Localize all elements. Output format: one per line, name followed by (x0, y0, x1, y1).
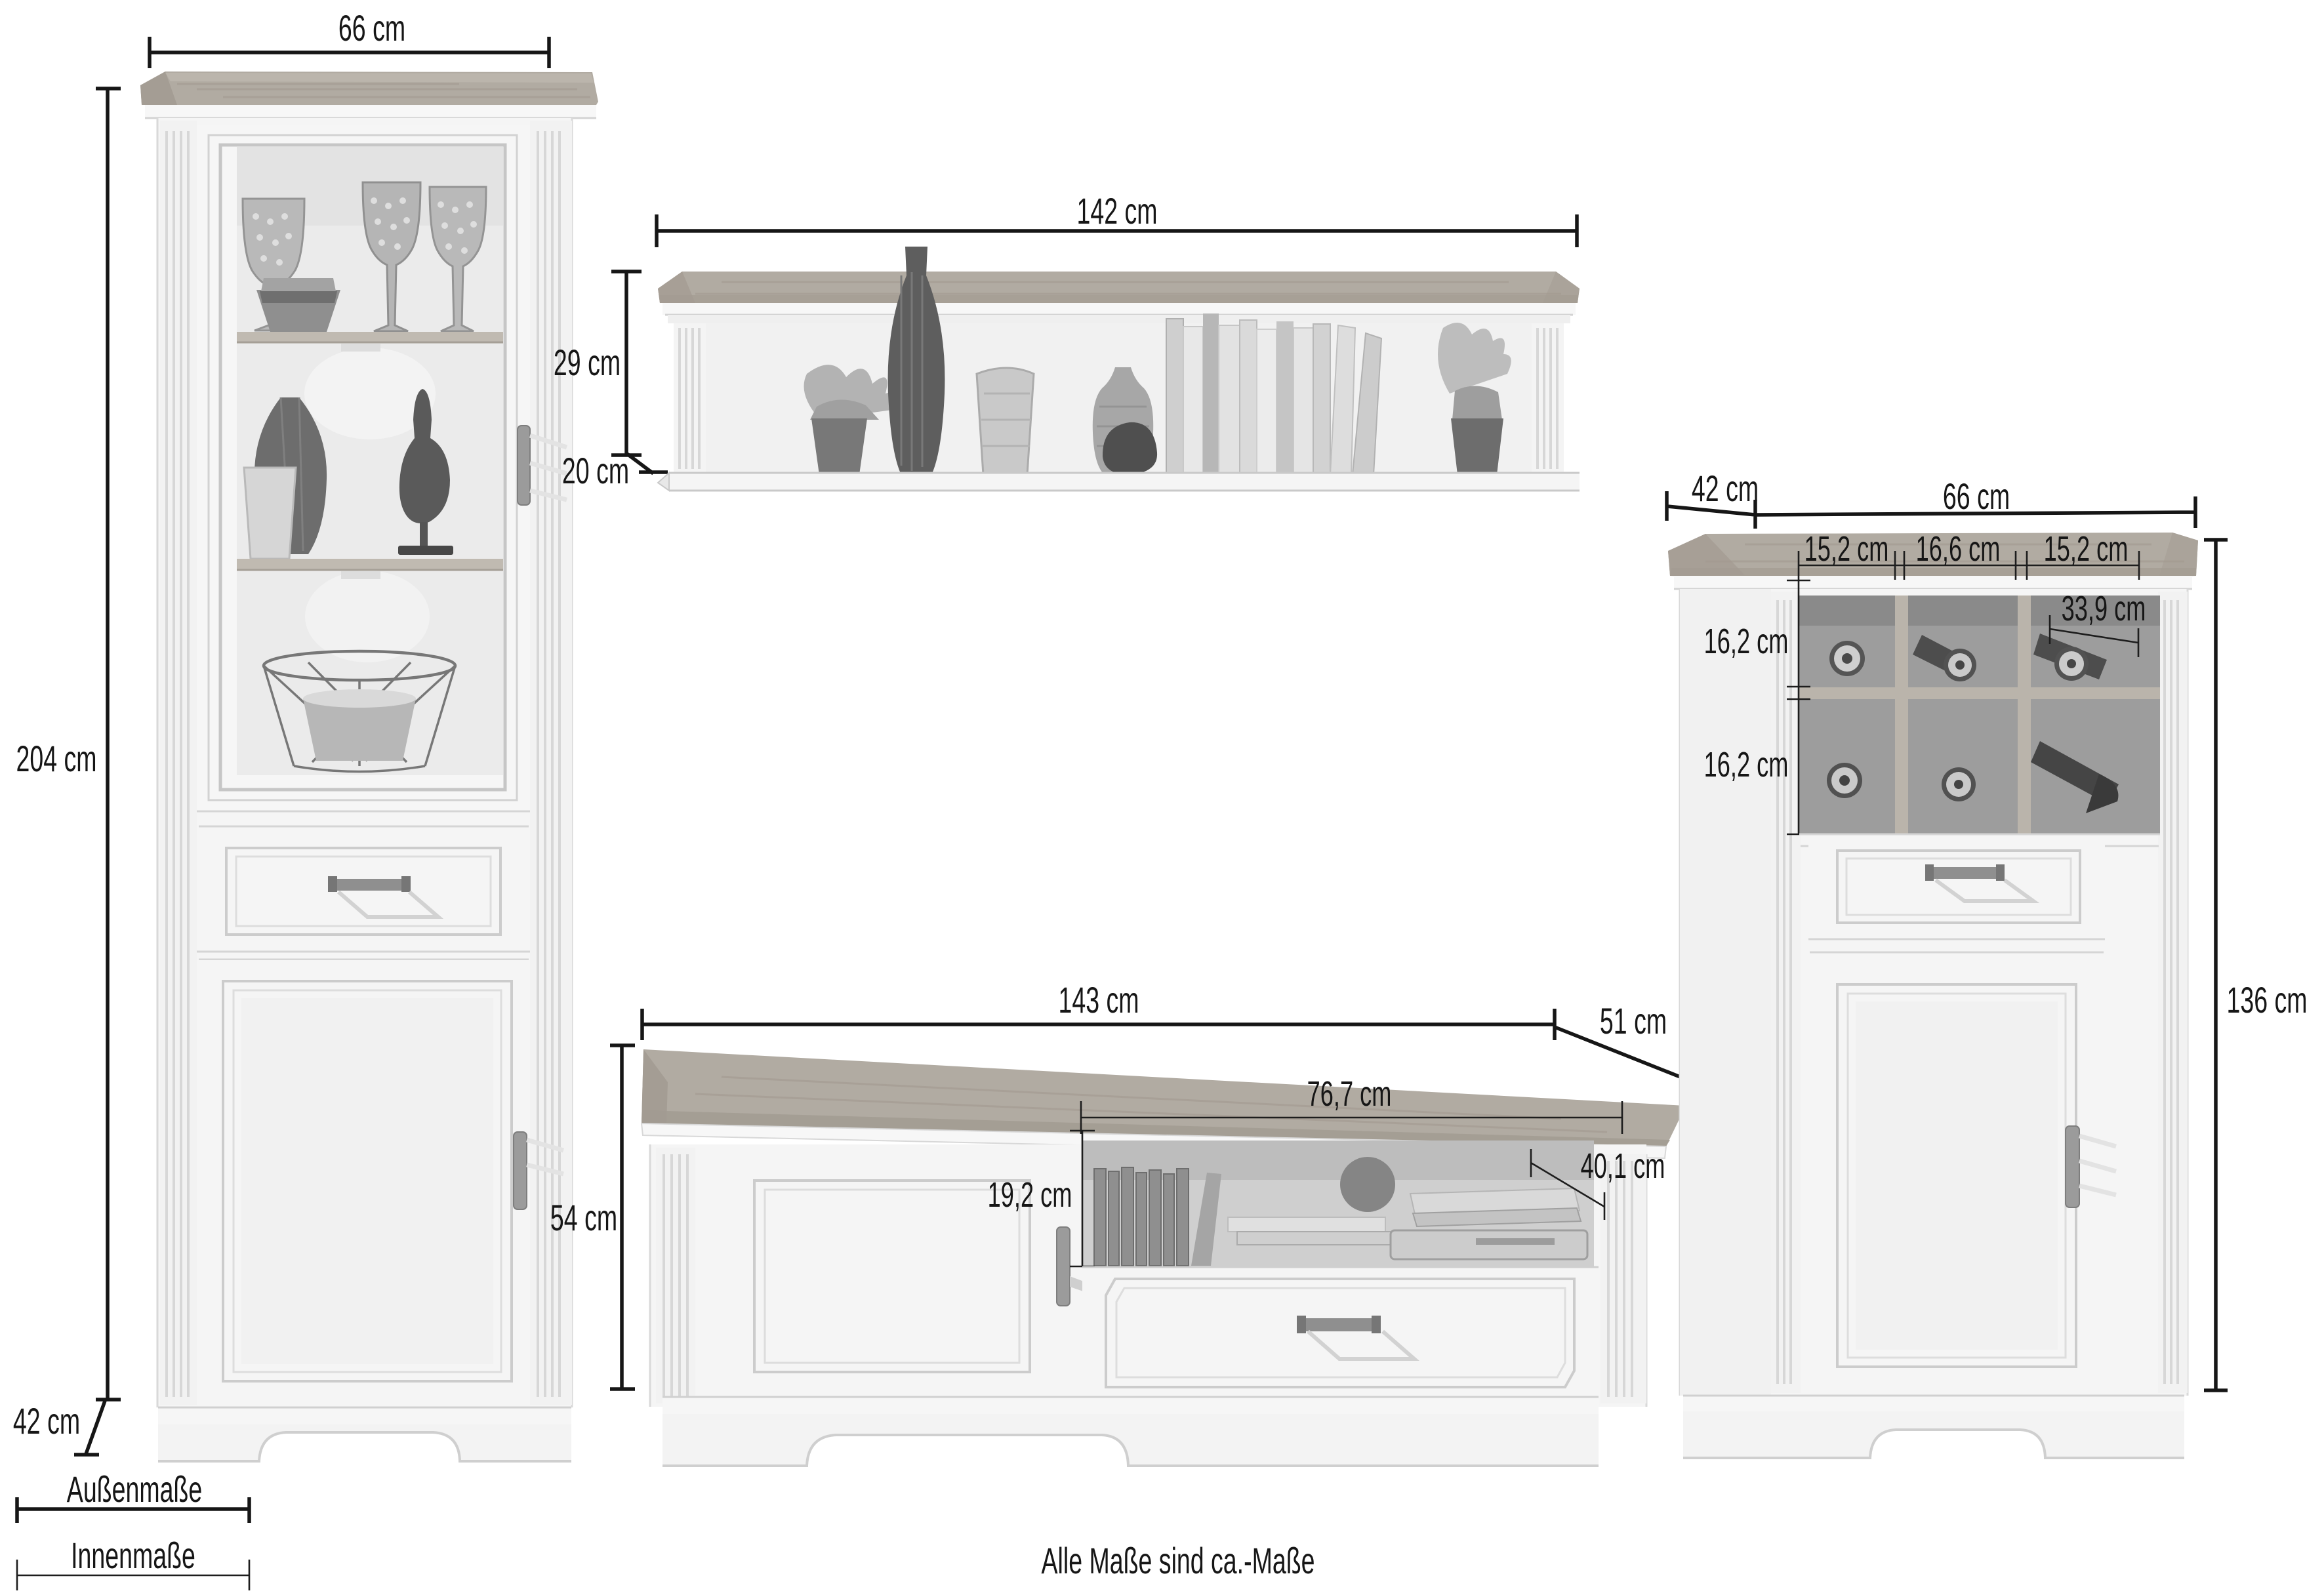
svg-text:16,6 cm: 16,6 cm (1916, 529, 2001, 569)
svg-text:136 cm: 136 cm (2226, 980, 2307, 1021)
svg-text:33,9 cm: 33,9 cm (2062, 588, 2146, 628)
svg-text:29 cm: 29 cm (554, 343, 621, 384)
svg-text:42 cm: 42 cm (13, 1402, 80, 1442)
svg-text:Außenmaße: Außenmaße (67, 1470, 202, 1510)
svg-text:204 cm: 204 cm (16, 739, 96, 780)
svg-text:42 cm: 42 cm (1692, 469, 1759, 510)
svg-text:66 cm: 66 cm (1943, 477, 2010, 517)
svg-text:76,7 cm: 76,7 cm (1307, 1074, 1392, 1114)
svg-text:15,2 cm: 15,2 cm (2044, 529, 2129, 569)
svg-text:51 cm: 51 cm (1600, 1001, 1667, 1042)
svg-text:19,2 cm: 19,2 cm (988, 1175, 1072, 1215)
svg-text:142 cm: 142 cm (1076, 192, 1157, 232)
svg-text:15,2 cm: 15,2 cm (1804, 529, 1889, 569)
svg-text:16,2 cm: 16,2 cm (1704, 621, 1789, 661)
svg-text:54 cm: 54 cm (550, 1198, 617, 1239)
svg-text:Innenmaße: Innenmaße (71, 1536, 195, 1577)
svg-text:40,1 cm: 40,1 cm (1581, 1146, 1665, 1186)
svg-text:16,2 cm: 16,2 cm (1704, 744, 1789, 784)
svg-text:20 cm: 20 cm (562, 451, 629, 492)
svg-text:Alle Maße sind ca.-Maße: Alle Maße sind ca.-Maße (1042, 1541, 1315, 1582)
svg-text:66 cm: 66 cm (338, 9, 405, 49)
svg-text:143 cm: 143 cm (1058, 980, 1139, 1021)
